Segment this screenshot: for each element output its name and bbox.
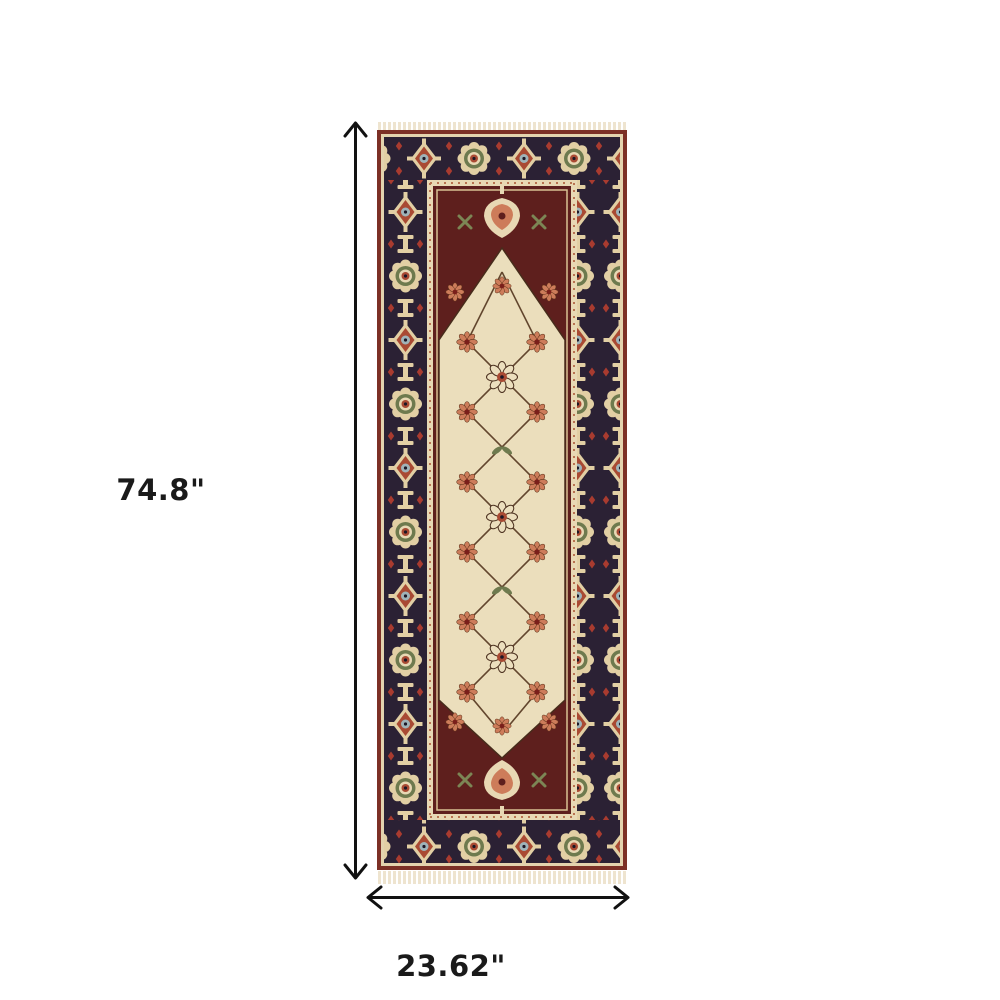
width-dimension-label: 23.62" — [389, 949, 513, 983]
height-dimension-arrow-icon — [345, 123, 366, 878]
height-dimension-label: 74.8" — [105, 473, 217, 507]
product-dimension-figure: 74.8" 23.62" — [0, 0, 1000, 1000]
width-dimension-arrow-icon — [368, 887, 628, 908]
